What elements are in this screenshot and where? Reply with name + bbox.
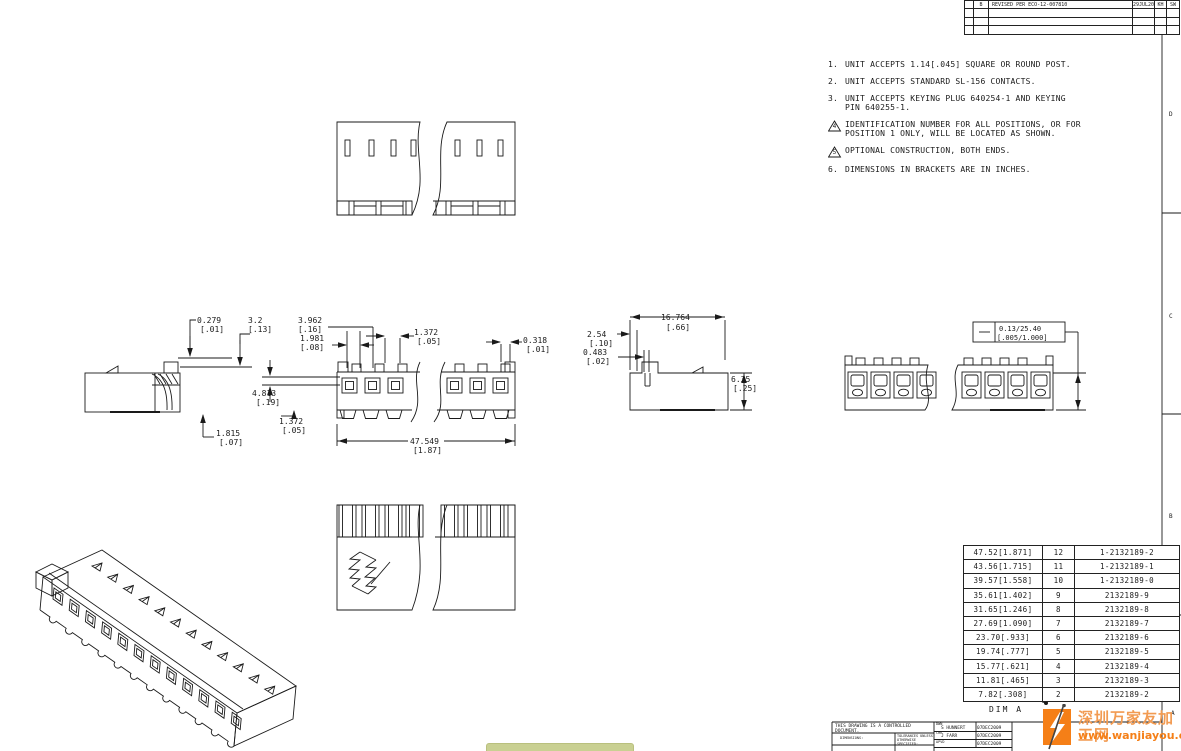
back-view [845,356,1053,410]
part-number-cell: 2132189-3 [1075,673,1180,687]
positions-cell: 6 [1043,631,1075,645]
dim-32-in: [.13] [248,325,272,334]
dim-1981-mm: 1.981 [300,334,324,343]
dim-16764-in: [.66] [666,323,690,332]
note-1-number: 1. [828,60,845,69]
note-4-number: 4 [828,122,841,131]
part-number-cell: 1-2132189-0 [1075,574,1180,588]
revision-row-empty [965,26,1180,34]
front-view [337,362,515,422]
note-3-text: UNIT ACCEPTS KEYING PLUG 640254-1 AND KE… [845,94,1085,112]
watermark-logo [1040,704,1076,750]
revision-row: B REVISED PER ECO-12-007810 29JUL2012 KH… [965,1,1180,9]
parts-row: 39.57[1.558]101-2132189-0 [964,574,1180,588]
dim-a-cell: 31.65[1.246] [964,602,1043,616]
note-6-text: DIMENSIONS IN BRACKETS ARE IN INCHES. [845,165,1085,174]
positions-cell: 8 [1043,602,1075,616]
dim-1815-mm: 1.815 [216,429,240,438]
dim-3962-mm: 3.962 [298,316,322,325]
parts-row: 27.69[1.090]72132189-7 [964,616,1180,630]
dim-1815-in: [.07] [219,438,243,447]
dim-3962-in: [.16] [298,325,322,334]
dim-a-cell: 15.77[.621] [964,659,1043,673]
callout-in: [.005/1.000] [997,334,1048,342]
parts-row: 31.65[1.246]82132189-8 [964,602,1180,616]
rev-drwn-cell: KH [1155,1,1167,9]
drawing-sheet: D C B A [0,0,1181,751]
dim-1981-in: [.08] [300,343,324,352]
apvd-date: 07DEC2009 [977,742,1001,747]
notes-list: 1. UNIT ACCEPTS 1.14[.045] SQUARE OR ROU… [828,60,1128,182]
dim-635-mm: 6.35 [731,375,750,384]
part-number-cell: 2132189-2 [1075,687,1180,701]
parts-row: 35.61[1.402]92132189-9 [964,588,1180,602]
watermark-site-url: www.wanjiayou.com [1078,729,1181,742]
dim-254-in: [.10] [589,339,613,348]
horizontal-scrollbar-thumb[interactable] [486,743,634,751]
note-6: 6. DIMENSIONS IN BRACKETS ARE IN INCHES. [828,165,1128,174]
part-number-cell: 2132189-9 [1075,588,1180,602]
positions-cell: 3 [1043,673,1075,687]
dim-4813-in: [.19] [256,398,280,407]
note-6-number: 6. [828,165,845,174]
dim-1372b-mm: 1.372 [279,417,303,426]
dim-1372t-in: [.05] [417,337,441,346]
rev-letter-cell: B [974,1,989,9]
dim-0279-mm: 0.279 [197,316,221,325]
note-4-text: IDENTIFICATION NUMBER FOR ALL POSITIONS,… [845,120,1085,138]
dim-4813-mm: 4.813 [252,389,276,398]
part-number-cell: 2132189-6 [1075,631,1180,645]
note-3: 3. UNIT ACCEPTS KEYING PLUG 640254-1 AND… [828,94,1128,112]
note-3-number: 3. [828,94,845,112]
tolerances-label: TOLERANCES UNLESS OTHERWISE SPECIFIED: [897,735,933,746]
zone-letter-b: B [1169,513,1173,520]
apvd-label: APVD [936,741,944,745]
dim-1372b-in: [.05] [282,426,306,435]
parts-row: 23.70[.933]62132189-6 [964,631,1180,645]
parts-table: 47.52[1.871]121-2132189-2 43.56[1.715]11… [963,545,1180,702]
positions-cell: 11 [1043,560,1075,574]
positions-cell: 7 [1043,616,1075,630]
dim-254-mm: 2.54 [587,330,606,339]
dim-0483-in: [.02] [586,357,610,366]
dim-a-cell: 35.61[1.402] [964,588,1043,602]
positions-cell: 5 [1043,645,1075,659]
dim-635-in: [.25] [733,384,757,393]
dim-32-mm: 3.2 [248,316,263,325]
note-5-text: OPTIONAL CONSTRUCTION, BOTH ENDS. [845,146,1085,157]
parts-row: 43.56[1.715]111-2132189-1 [964,560,1180,574]
dimensions-label: DIMENSIONS: [840,737,863,741]
callout-mm: 0.13/25.40 [999,325,1041,333]
chk-date: 07DEC2009 [977,734,1001,739]
lightning-logo-icon [1040,704,1076,750]
note-1-text: UNIT ACCEPTS 1.14[.045] SQUARE OR ROUND … [845,60,1085,69]
side-view-left [85,362,180,412]
rev-description-cell: REVISED PER ECO-12-007810 [989,1,1133,9]
bottom-view [337,505,515,610]
dwn-name: S HUNNERT [941,726,965,731]
dim-0279-in: [.01] [200,325,224,334]
note-5: 5 OPTIONAL CONSTRUCTION, BOTH ENDS. [828,146,1128,157]
note-4: 4 IDENTIFICATION NUMBER FOR ALL POSITION… [828,120,1128,138]
note-2: 2. UNIT ACCEPTS STANDARD SL-156 CONTACTS… [828,77,1128,86]
note-5-flag-triangle-icon: 5 [828,146,845,157]
positions-cell: 10 [1043,574,1075,588]
dim-0318-in: [.01] [526,345,550,354]
revision-row-empty [965,9,1180,17]
side-view-right [630,362,728,410]
dim-47549-in: [1.87] [413,446,442,455]
dim-a-cell: 7.82[.308] [964,687,1043,701]
note-1: 1. UNIT ACCEPTS 1.14[.045] SQUARE OR ROU… [828,60,1128,69]
zone-letter-d: D [1169,111,1173,118]
dim-a-cell: 23.70[.933] [964,631,1043,645]
rev-apvd-cell: SW [1167,1,1180,9]
dim-a-cell: 47.52[1.871] [964,546,1043,560]
controlled-document-note: THIS DRAWING IS A CONTROLLED DOCUMENT. [835,724,932,734]
part-number-cell: 1-2132189-1 [1075,560,1180,574]
rev-date-cell: 29JUL2012 [1133,1,1155,9]
parts-row: 15.77[.621]42132189-4 [964,659,1180,673]
note-2-text: UNIT ACCEPTS STANDARD SL-156 CONTACTS. [845,77,1085,86]
dim-16764-mm: 16.764 [661,313,690,322]
top-view [337,122,515,215]
part-number-cell: 2132189-4 [1075,659,1180,673]
positions-cell: 12 [1043,546,1075,560]
positions-cell: 9 [1043,588,1075,602]
parts-row: 47.52[1.871]121-2132189-2 [964,546,1180,560]
positions-cell: 2 [1043,687,1075,701]
dim-a-cell: 43.56[1.715] [964,560,1043,574]
revision-table: B REVISED PER ECO-12-007810 29JUL2012 KH… [964,0,1180,35]
parts-row: 19.74[.777]52132189-5 [964,645,1180,659]
parts-row: 7.82[.308]22132189-2 [964,687,1180,701]
part-number-cell: 2132189-7 [1075,616,1180,630]
note-2-number: 2. [828,77,845,86]
chk-name: J FARR [941,734,957,739]
dim-a-cell: 11.81[.465] [964,673,1043,687]
dim-0483-mm: 0.483 [583,348,607,357]
part-number-cell: 2132189-5 [1075,645,1180,659]
identification-marking [349,552,390,594]
positions-cell: 4 [1043,659,1075,673]
isometric-view [36,550,296,747]
rev-zone-cell [965,1,974,9]
revision-row-empty [965,17,1180,25]
part-number-cell: 1-2132189-2 [1075,546,1180,560]
dim-a-cell: 39.57[1.558] [964,574,1043,588]
dim-a-cell: 19.74[.777] [964,645,1043,659]
note-5-number: 5 [828,148,841,157]
dwn-date: 07DEC2009 [977,726,1001,731]
dim-0318-mm: 0.318 [523,336,547,345]
dim-a-cell: 27.69[1.090] [964,616,1043,630]
note-4-flag-triangle-icon: 4 [828,120,845,131]
dim-1372t-mm: 1.372 [414,328,438,337]
part-number-cell: 2132189-8 [1075,602,1180,616]
parts-row: 11.81[.465]32132189-3 [964,673,1180,687]
dim-47549-mm: 47.549 [410,437,439,446]
parts-table-dim-a-label: DIM A [970,705,1042,714]
zone-letter-c: C [1169,313,1173,320]
